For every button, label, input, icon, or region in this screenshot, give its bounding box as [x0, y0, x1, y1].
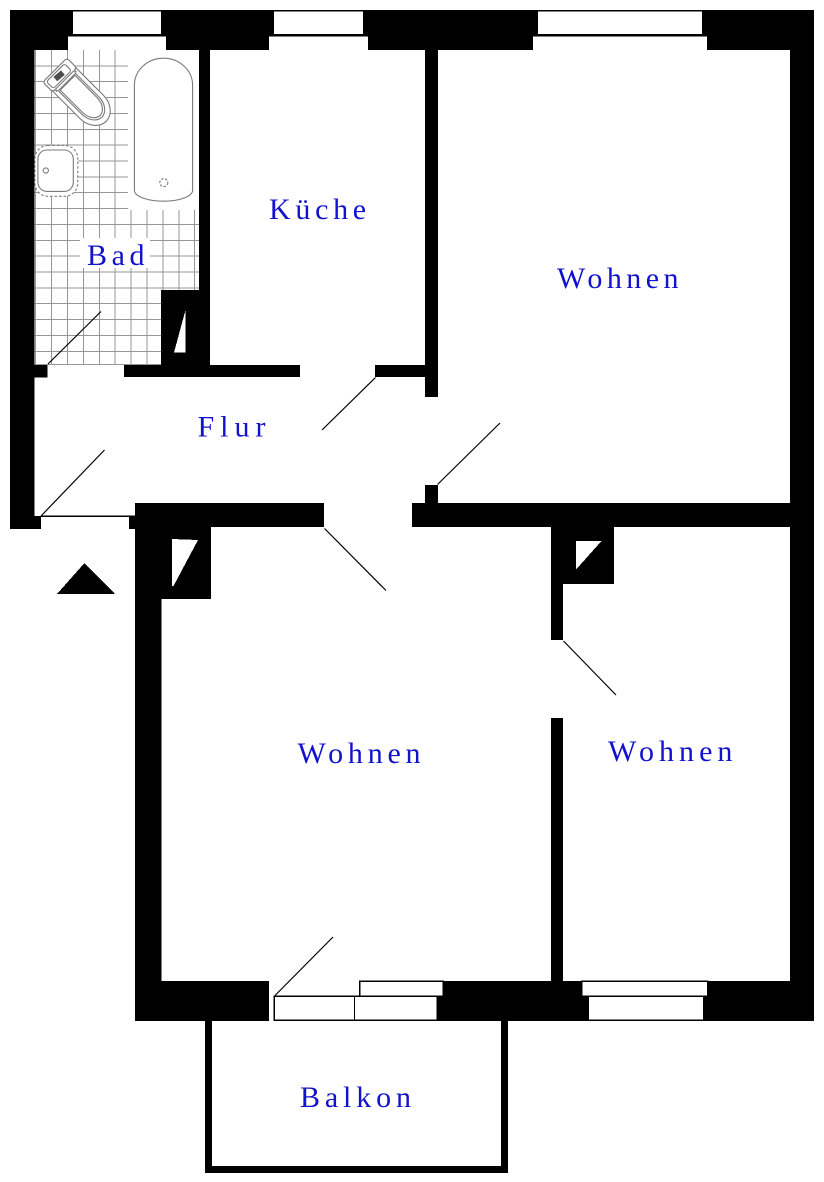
svg-text:Wohnen: Wohnen: [298, 737, 426, 770]
svg-text:Bad: Bad: [87, 239, 149, 272]
svg-text:Balkon: Balkon: [300, 1081, 416, 1114]
svg-text:Wohnen: Wohnen: [608, 735, 737, 768]
svg-text:Küche: Küche: [269, 193, 371, 226]
svg-text:Flur: Flur: [198, 411, 272, 444]
svg-text:Wohnen: Wohnen: [557, 262, 683, 295]
